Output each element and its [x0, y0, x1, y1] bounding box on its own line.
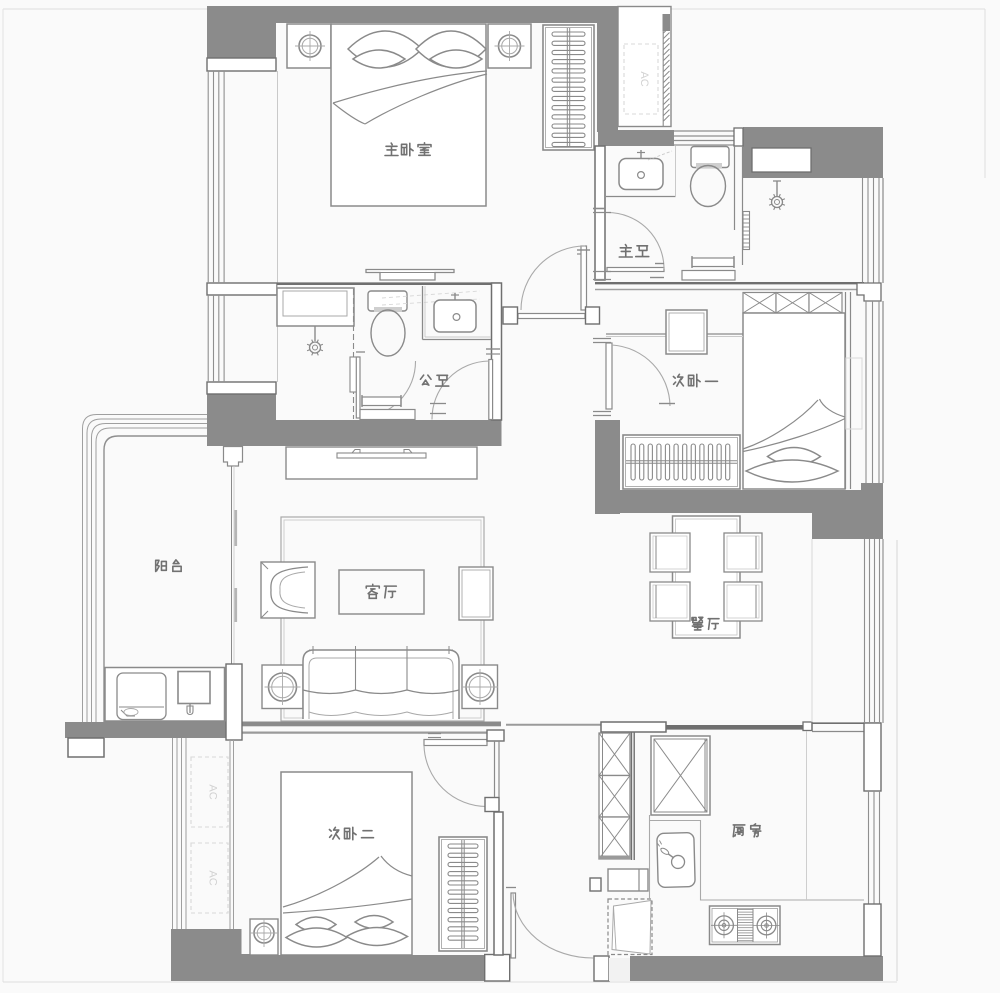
- svg-text:AC: AC: [207, 870, 219, 885]
- svg-text:AC: AC: [207, 784, 219, 799]
- svg-text:AC: AC: [638, 71, 650, 86]
